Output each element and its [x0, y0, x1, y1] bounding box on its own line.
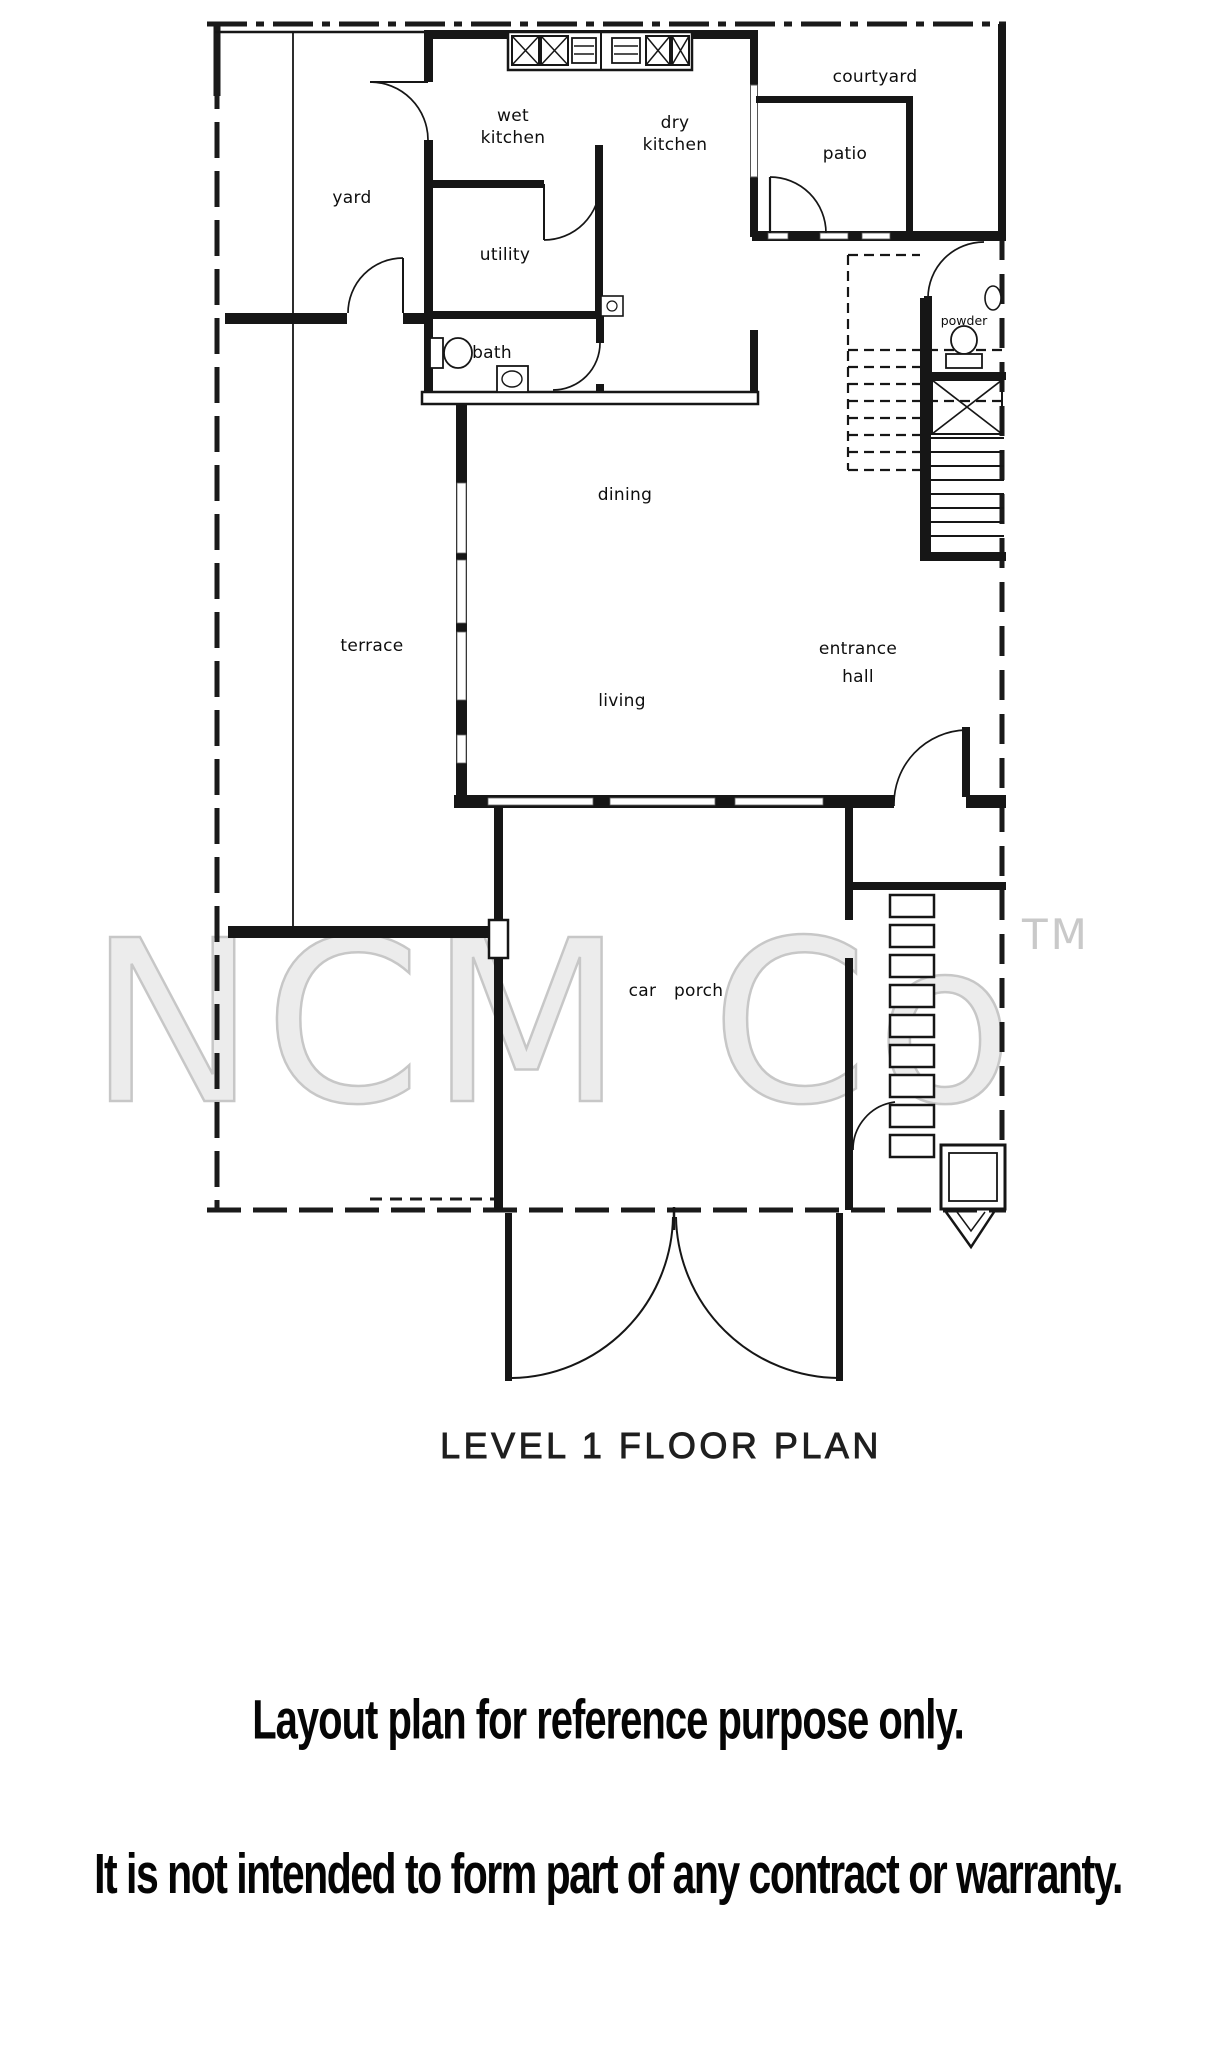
room-label-dry-kitchen-line1: dry: [661, 113, 690, 133]
room-label-entrance-hall-line1: entrance: [819, 639, 897, 659]
room-label-dry-kitchen-line2: kitchen: [643, 135, 708, 155]
disclaimer-line-2: It is not intended to form part of any c…: [0, 1842, 1216, 1907]
room-label-courtyard: courtyard: [833, 67, 918, 87]
room-label-bath: bath: [472, 343, 512, 363]
room-label-car-porch: car porch: [629, 981, 724, 1001]
room-label-wet-kitchen-line2: kitchen: [481, 128, 546, 148]
floor-plan-drawing: yard wet kitchen dry kitchen courtyard p…: [0, 0, 1216, 1470]
room-label-terrace: terrace: [340, 636, 403, 656]
side-gate-structure: [941, 1145, 1005, 1247]
plan-title: LEVEL 1 FLOOR PLAN: [440, 1425, 882, 1466]
room-label-entrance-hall-line2: hall: [842, 667, 874, 687]
boundary-fence: [207, 22, 1006, 1212]
disclaimer-line-1: Layout plan for reference purpose only.: [0, 1690, 1216, 1752]
room-label-wet-kitchen-line1: wet: [497, 106, 529, 126]
room-label-powder: powder: [941, 313, 988, 328]
room-label-living: living: [598, 691, 646, 711]
stepping-pads: [890, 895, 934, 1157]
room-label-patio: patio: [823, 144, 868, 164]
driveway-gate: [505, 1207, 843, 1381]
room-label-utility: utility: [480, 245, 530, 265]
kitchen-counter: [508, 32, 692, 70]
room-label-yard: yard: [332, 188, 371, 208]
bath-fixtures: [430, 296, 623, 392]
room-label-dining: dining: [598, 485, 652, 505]
